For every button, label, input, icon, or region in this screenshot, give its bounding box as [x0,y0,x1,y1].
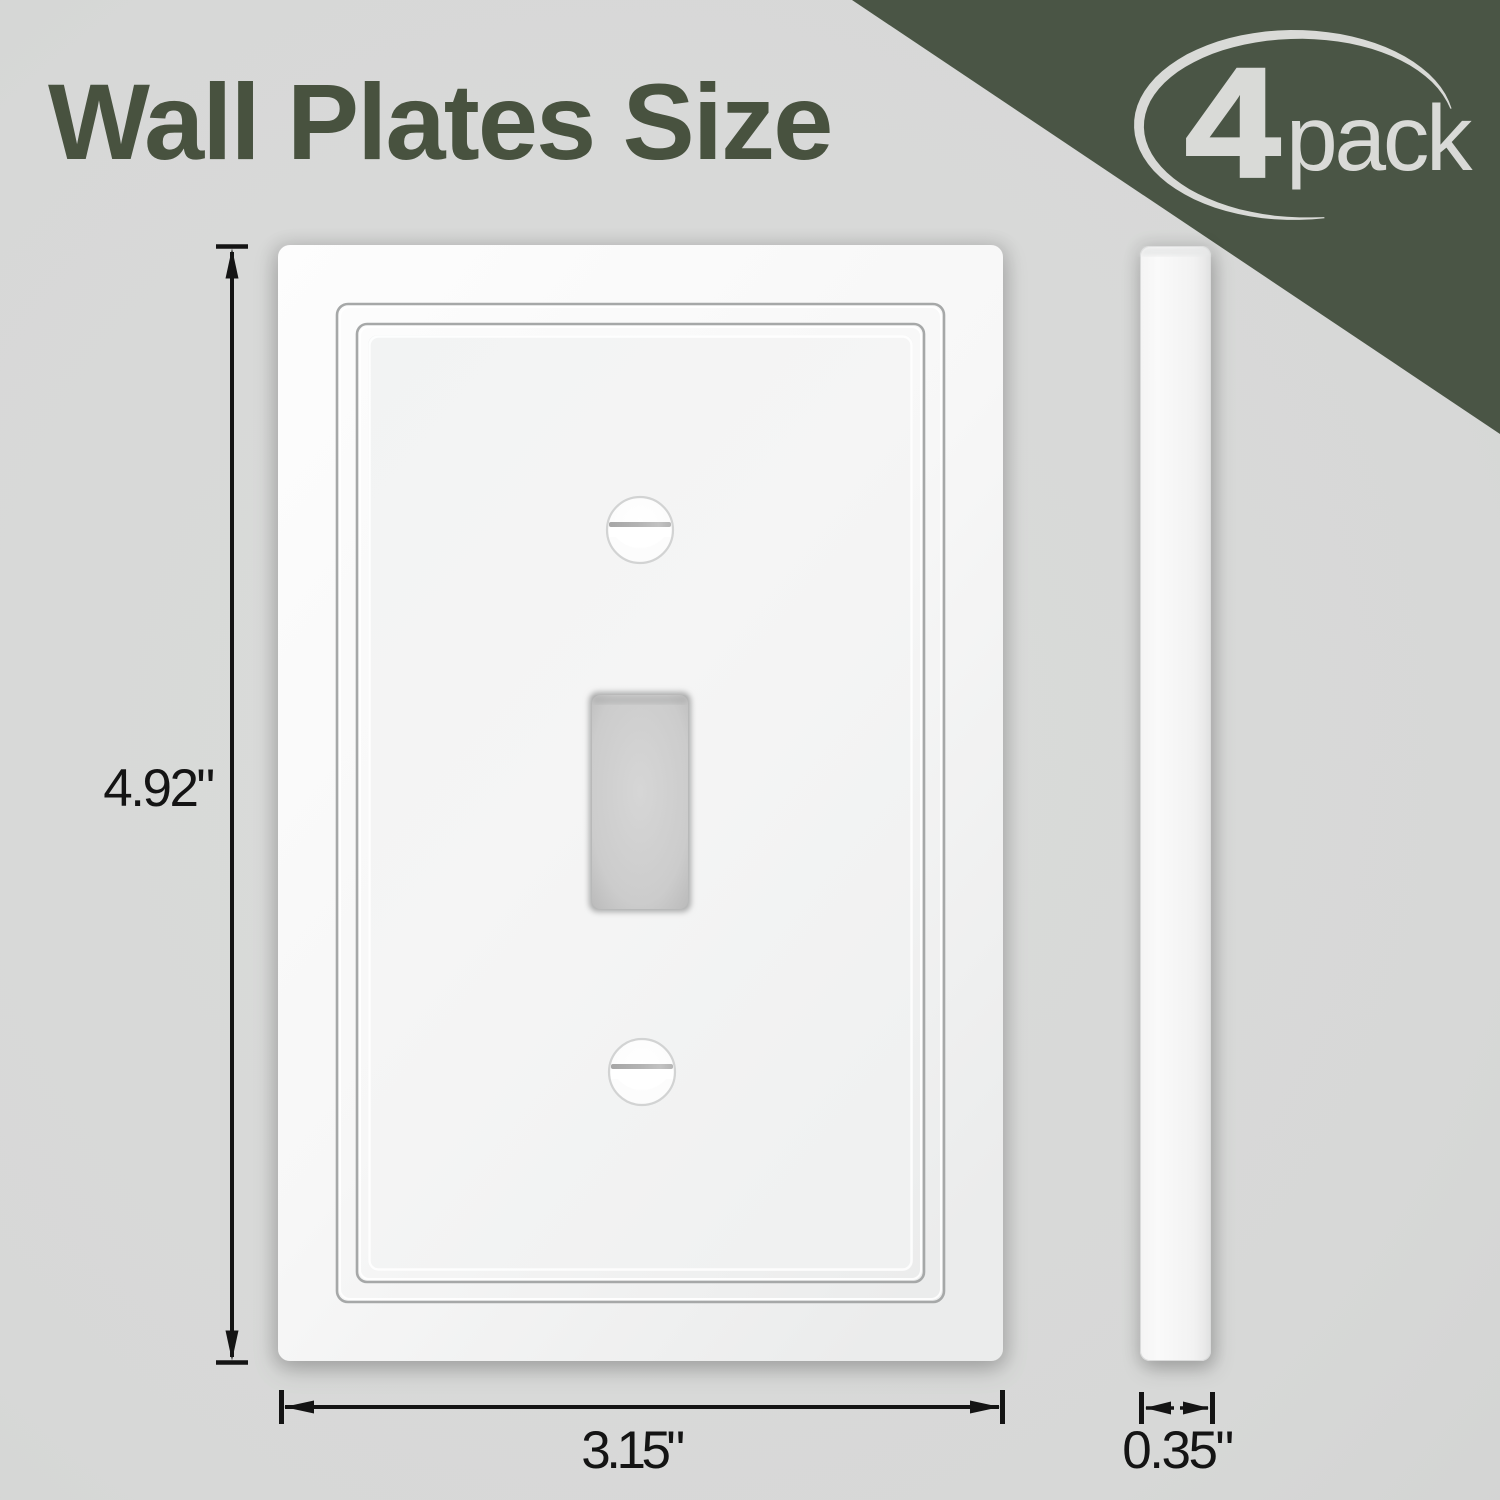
svg-text:Wall Plates Size: Wall Plates Size [48,61,832,182]
svg-text:pack: pack [1286,86,1473,190]
svg-text:3.15": 3.15" [581,1421,683,1480]
svg-text:4: 4 [1185,36,1280,210]
svg-text:0.35": 0.35" [1122,1421,1232,1480]
svg-text:4.92": 4.92" [103,759,213,818]
